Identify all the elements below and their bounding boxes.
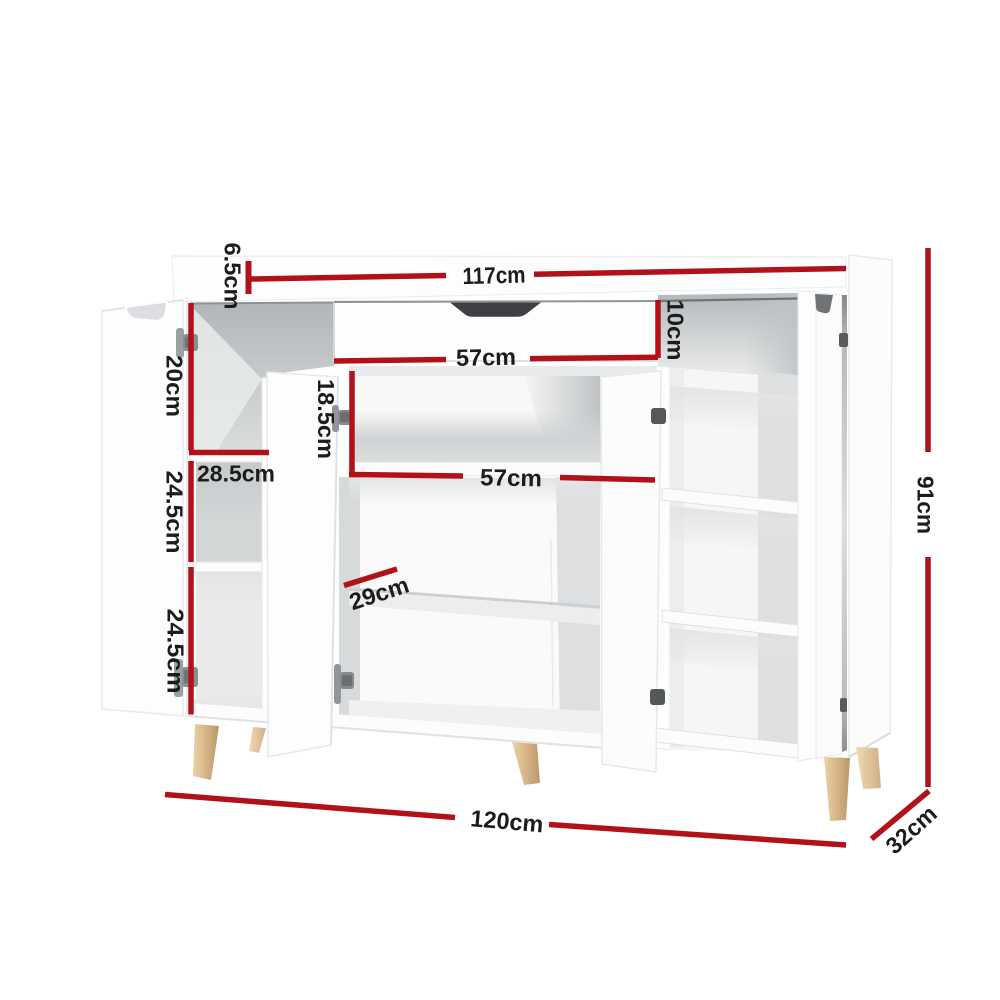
- svg-text:57cm: 57cm: [480, 464, 542, 491]
- svg-text:20cm: 20cm: [162, 355, 188, 417]
- svg-text:24.5cm: 24.5cm: [163, 609, 189, 694]
- svg-text:117cm: 117cm: [462, 261, 526, 289]
- svg-text:91cm: 91cm: [913, 476, 939, 534]
- svg-text:6.5cm: 6.5cm: [220, 243, 246, 310]
- svg-text:10cm: 10cm: [663, 300, 689, 361]
- svg-text:18.5cm: 18.5cm: [313, 379, 339, 459]
- svg-text:28.5cm: 28.5cm: [197, 460, 275, 486]
- svg-text:24.5cm: 24.5cm: [162, 471, 188, 554]
- svg-text:57cm: 57cm: [456, 344, 516, 371]
